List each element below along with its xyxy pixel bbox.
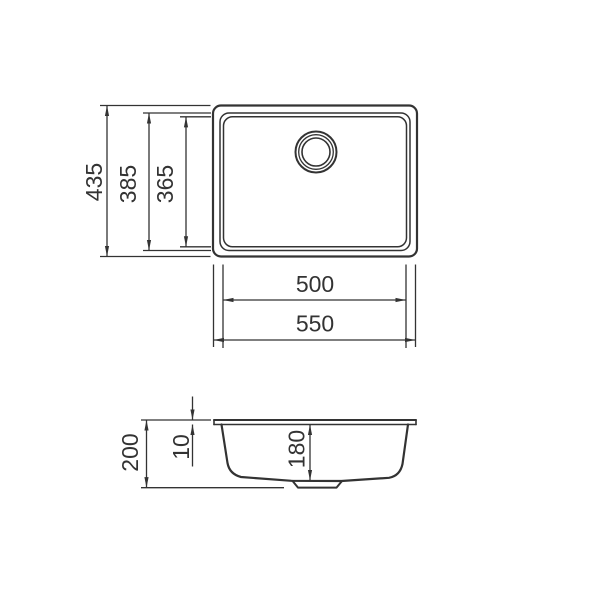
drain-icon: [296, 132, 337, 173]
bowl-profile: [222, 425, 409, 482]
sink-section-outline: [214, 420, 416, 488]
dim-label-rim-height: 385: [115, 165, 141, 203]
dim-inner-height: 365: [152, 117, 211, 247]
sink-top-outline: [213, 106, 417, 257]
drawing-svg: 435 385 365 500 550: [0, 0, 600, 600]
dim-rim-thickness: 10: [168, 397, 194, 467]
dim-bowl-depth: 180: [284, 425, 311, 481]
dim-label-rim-thickness: 10: [168, 434, 194, 460]
sink-rim-outer-line: [220, 113, 410, 251]
side-view: 200 10 180: [117, 397, 416, 488]
dim-label-inner-width: 500: [296, 271, 334, 297]
sink-dimension-drawing: 435 385 365 500 550: [0, 0, 600, 600]
sink-rim-inner-line: [224, 117, 407, 247]
dim-label-inner-height: 365: [152, 165, 178, 203]
dim-label-overall-depth: 200: [117, 433, 143, 471]
dim-label-overall-height: 435: [81, 163, 107, 201]
dim-overall-height: 435: [81, 106, 211, 257]
dim-label-overall-width: 550: [296, 311, 334, 337]
dim-label-bowl-depth: 180: [284, 430, 310, 468]
top-view: 435 385 365 500 550: [81, 106, 417, 349]
sink-outer-edge: [213, 106, 417, 257]
